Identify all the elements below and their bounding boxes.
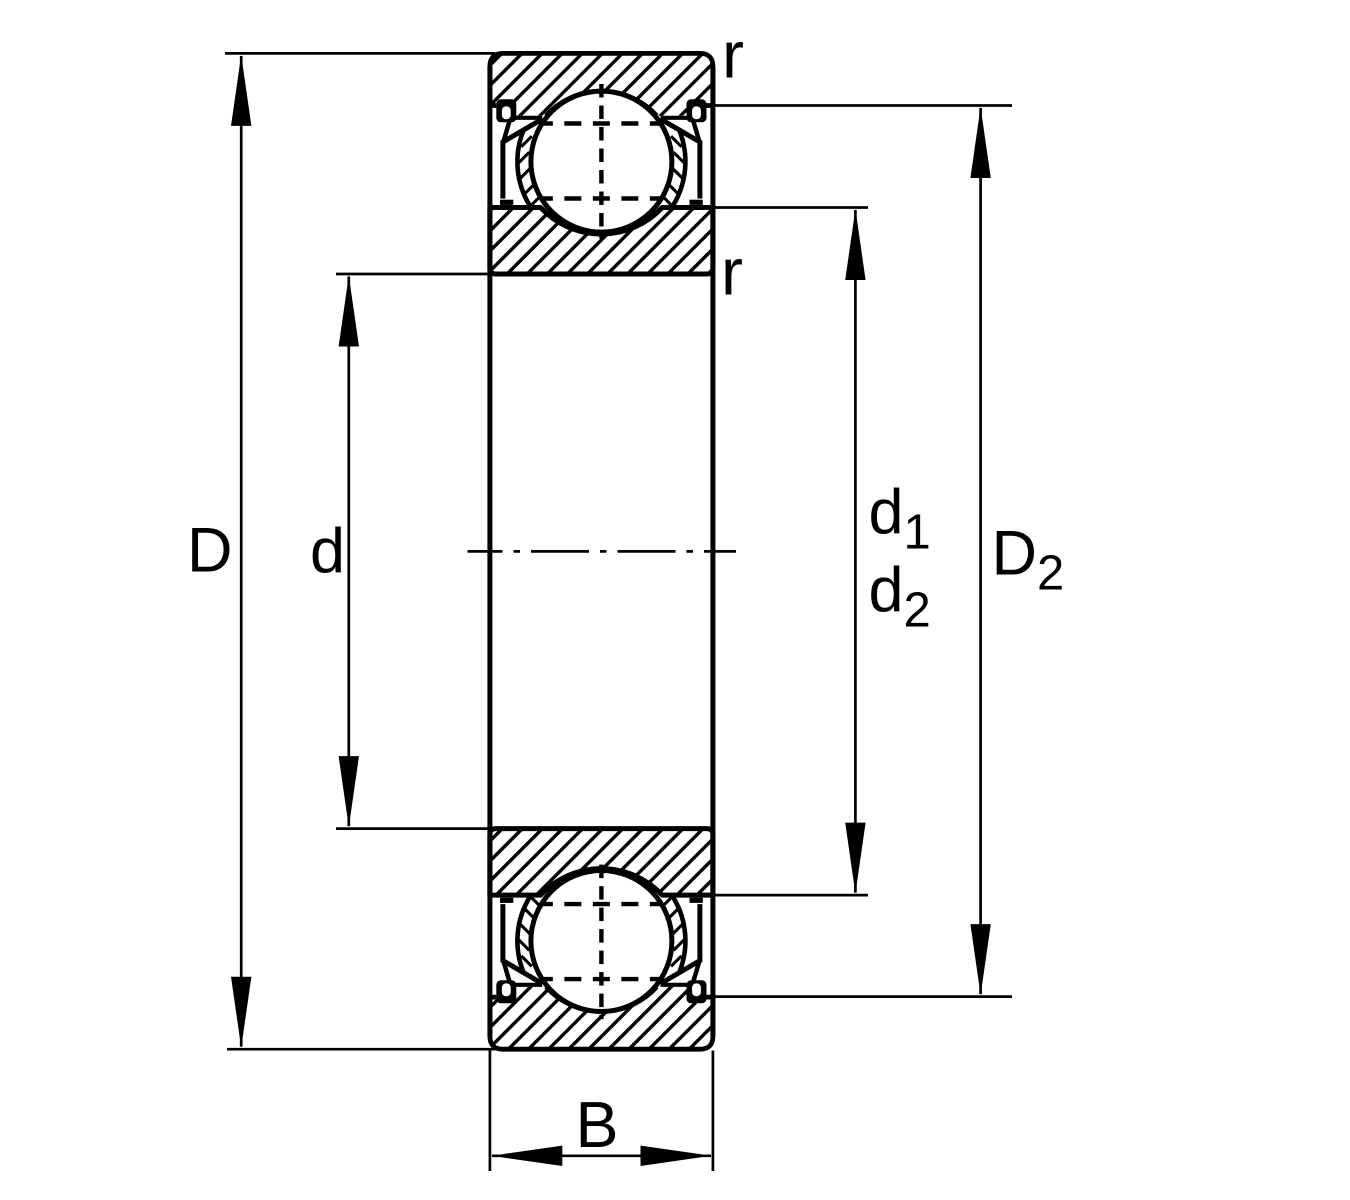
svg-text:r: r [721, 235, 743, 309]
svg-text:D: D [187, 516, 233, 586]
svg-text:d: d [310, 516, 345, 586]
svg-text:r: r [722, 18, 744, 92]
svg-text:B: B [576, 1089, 619, 1161]
